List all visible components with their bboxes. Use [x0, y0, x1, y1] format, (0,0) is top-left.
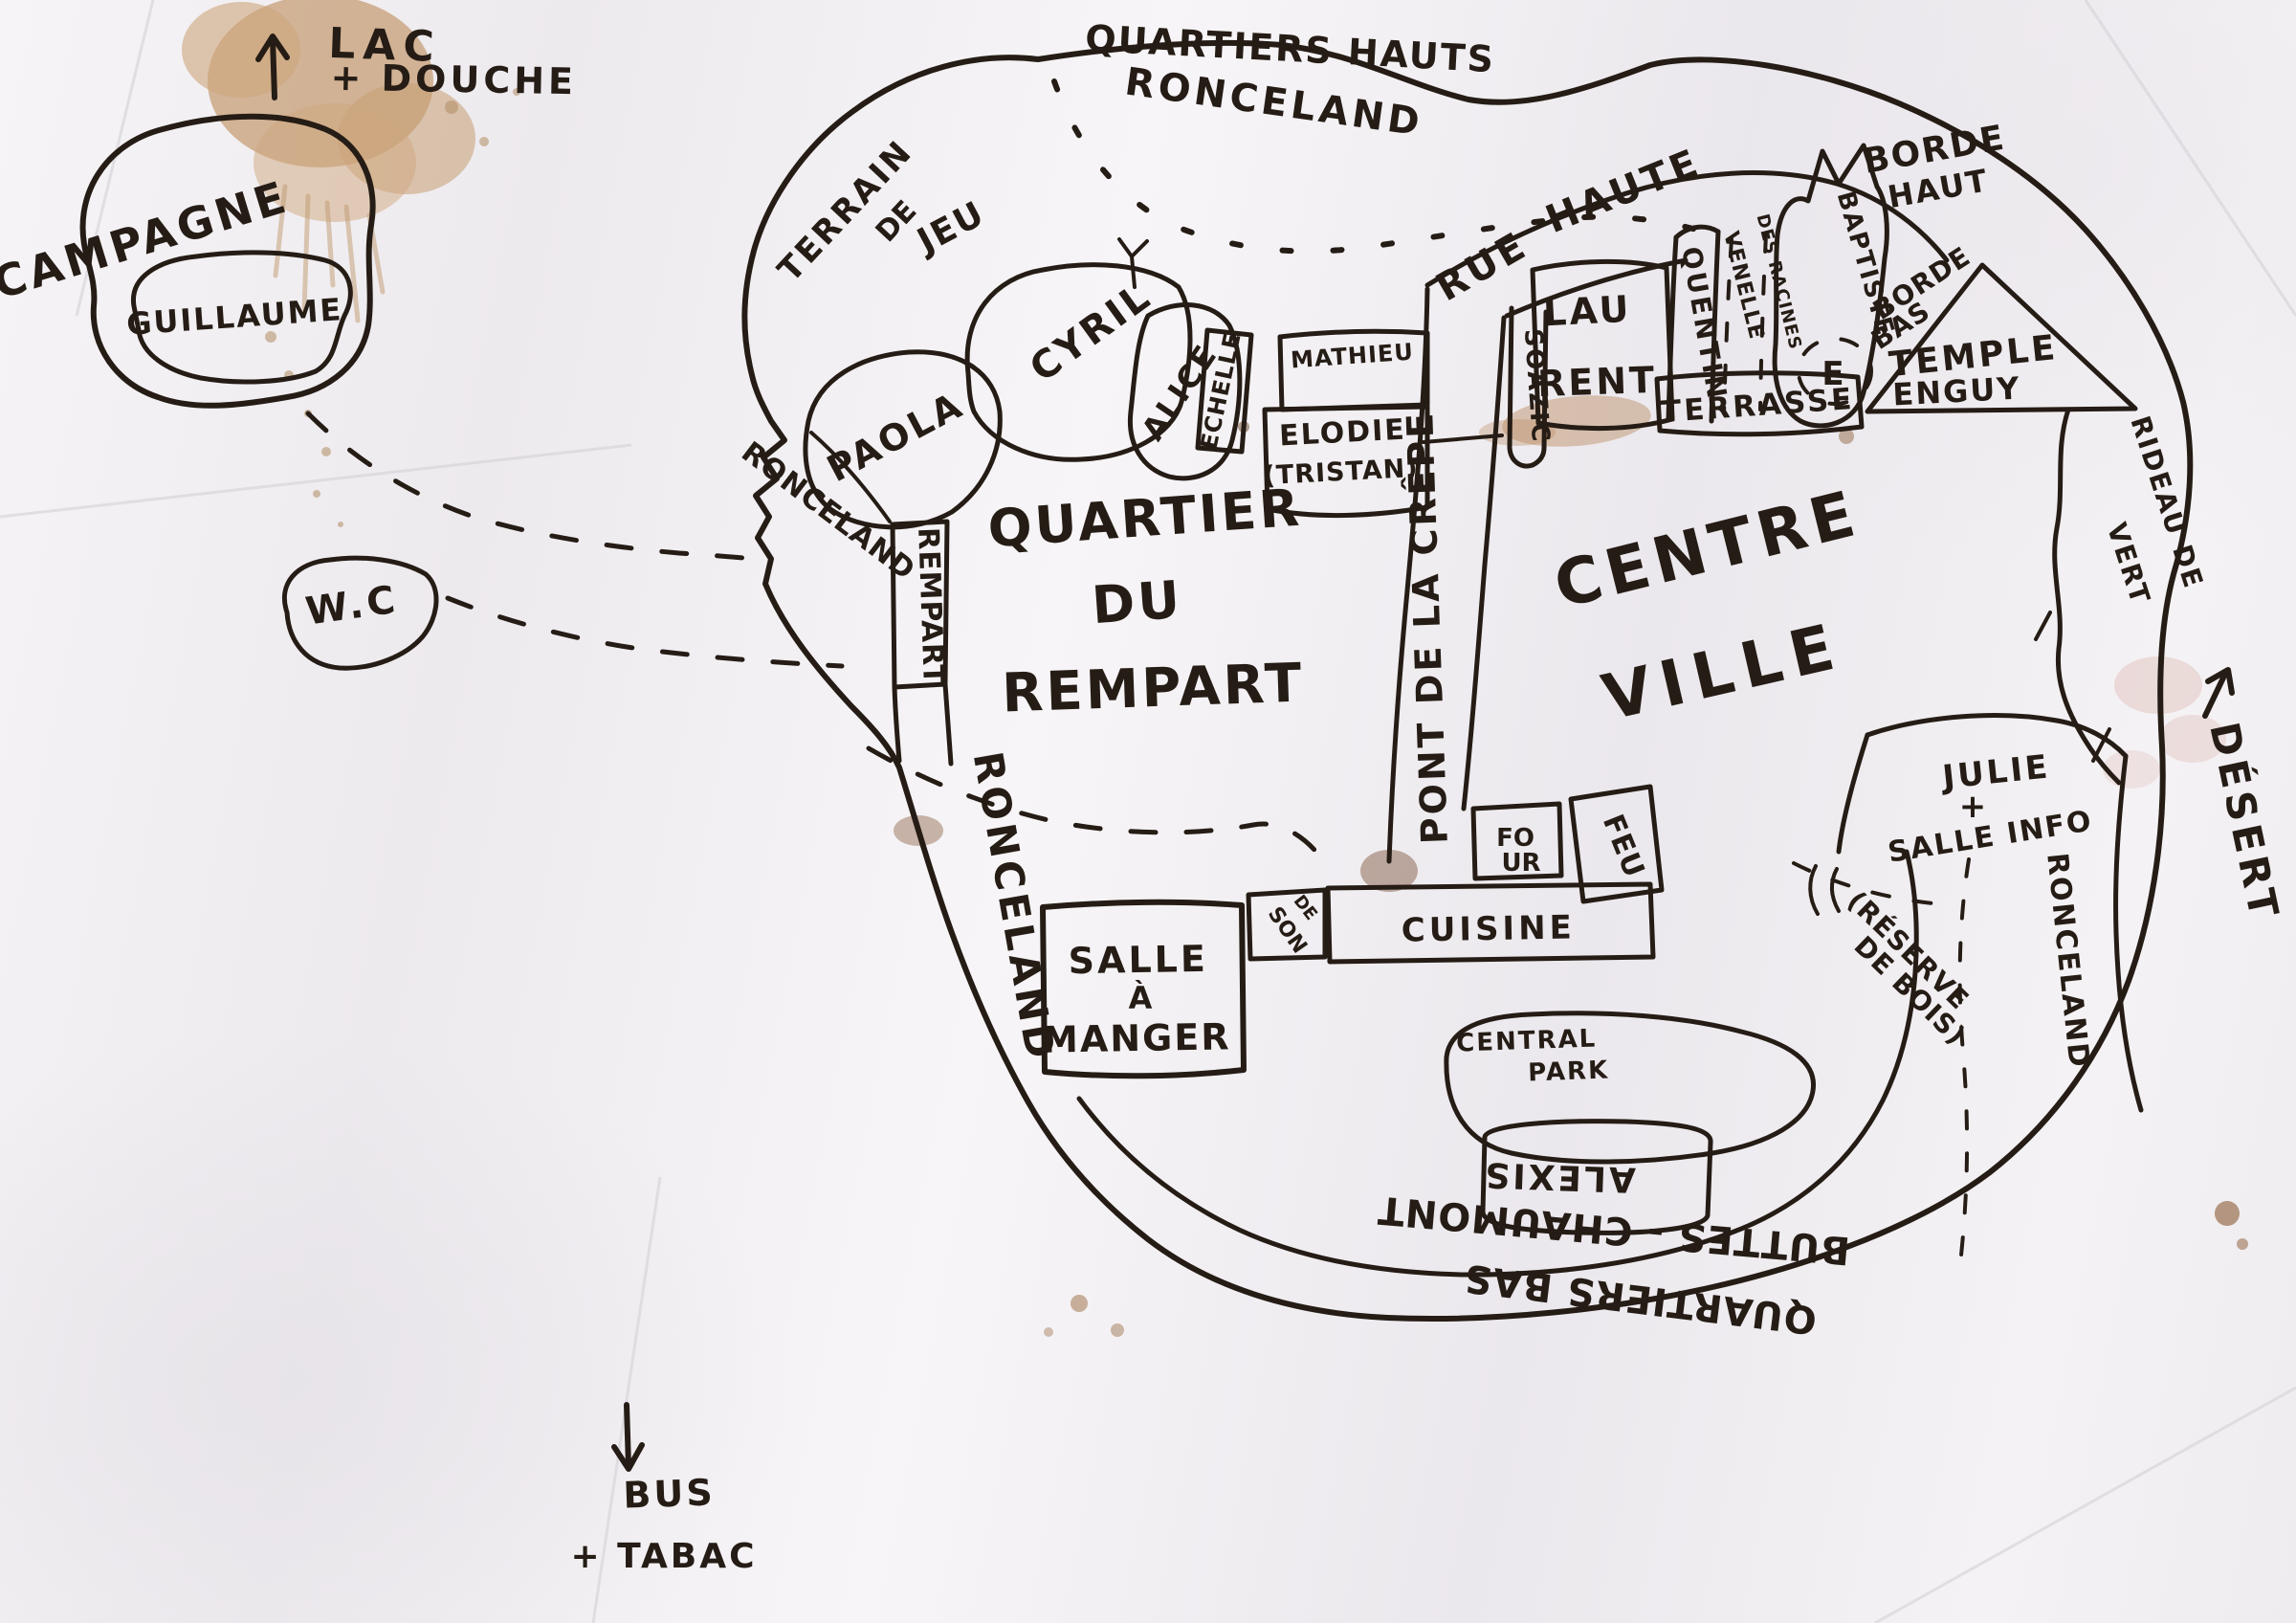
splatter-dot: [265, 331, 276, 343]
splatter-dot: [313, 490, 320, 498]
splatter-dot: [479, 137, 489, 146]
arrow-stem: [273, 38, 275, 98]
arrow-up-desert-icon: [2205, 670, 2232, 716]
label-buttes-chaumont: BUTTES - CHAUMONT: [1376, 1187, 1852, 1272]
brown-spot: [2215, 1201, 2240, 1226]
label-feu: FEU: [1596, 810, 1651, 882]
pont-road-right: [1464, 318, 1504, 809]
label-bus: BUS: [623, 1471, 717, 1516]
label-cuisine: CUISINE: [1401, 908, 1576, 949]
label-rempart-district: REMPART: [1001, 653, 1305, 725]
label-a-grave: À: [1129, 980, 1153, 1016]
label-elodie: ELODIE: [1278, 413, 1406, 454]
label-four-line2: UR: [1501, 849, 1540, 878]
label-centre: CENTRE: [1547, 476, 1867, 623]
label-central: CENTRAL: [1456, 1024, 1598, 1057]
arrow-branch: [1119, 239, 1132, 256]
label-enguy: ENGUY: [1891, 370, 2021, 413]
label-quentin: QUENTIN: [1675, 244, 1733, 403]
label-jeu: JEU: [909, 194, 992, 263]
paper-creases: [0, 0, 2296, 1623]
crease-line: [0, 445, 631, 517]
arrow-stem: [627, 1405, 629, 1466]
label-quartiers-bas: QUARTIERS BAS: [1461, 1255, 1819, 1342]
scanned-paper-map: LAC + DOUCHE CAMPAGNE GUILLAUME W.C BUS …: [0, 0, 2296, 1623]
label-wc: W.C: [303, 578, 402, 634]
splatter-dot: [445, 100, 458, 114]
arrow-branch: [1132, 241, 1147, 256]
brown-spot: [1111, 1323, 1124, 1337]
brown-spot: [1044, 1327, 1053, 1337]
label-campagne: CAMPAGNE: [0, 170, 295, 309]
label-terrasse: TERRASSE: [1660, 382, 1856, 430]
label-douche: + DOUCHE: [330, 56, 577, 102]
label-rempart-road: REMPART: [911, 527, 950, 686]
pink-smudge: [2103, 750, 2160, 789]
ronceland-east-road-left: [2116, 756, 2141, 1110]
reserve-dashed-trail: [1959, 859, 1969, 1273]
ink-drawing: [83, 36, 2232, 1469]
label-guillaume: GUILLAUME: [125, 291, 344, 343]
label-desert: DÉSERT: [2200, 718, 2289, 925]
splatter-dot: [338, 522, 343, 527]
label-alexis: ALEXIS: [1482, 1154, 1637, 1199]
brown-spot: [1071, 1295, 1088, 1312]
reserve-paren-mark: [1832, 869, 1839, 911]
splatter-dot: [321, 447, 331, 456]
label-quartier: QUARTIER: [986, 478, 1304, 560]
hand-drawn-camp-map: LAC + DOUCHE CAMPAGNE GUILLAUME W.C BUS …: [0, 0, 2296, 1623]
label-rent: RENT: [1536, 359, 1657, 405]
label-du: DU: [1090, 569, 1184, 635]
label-salle: SALLE: [1068, 938, 1208, 983]
trail-to-campagne: [308, 413, 754, 559]
label-tabac: + TABAC: [570, 1537, 757, 1576]
julie-zone-top: [1867, 716, 2126, 756]
label-paola: PAOLA: [820, 384, 970, 490]
rempart-district-dashed-boundary: [869, 748, 1322, 859]
julie-zone-left: [1839, 735, 1867, 852]
crease-line: [1875, 1388, 2296, 1623]
map-labels: LAC + DOUCHE CAMPAGNE GUILLAUME W.C BUS …: [0, 17, 2289, 1576]
rempart-road-right: [945, 684, 951, 764]
trail-to-wc: [448, 598, 842, 666]
label-julie-plus: +: [1959, 788, 1987, 826]
path-slash-mark: [2036, 612, 2050, 639]
label-park: PARK: [1528, 1056, 1610, 1088]
label-cyril: CYRIL: [1022, 274, 1159, 390]
label-pont-de-la-crepe-road: PONT DE LA CRÊPE: [1399, 410, 1456, 845]
rempart-road-left: [894, 687, 899, 761]
label-manger: MANGER: [1042, 1015, 1231, 1060]
label-lau: LAU: [1542, 288, 1632, 335]
label-julie: JULIE: [1939, 747, 2052, 797]
label-ville: VILLE: [1596, 609, 1850, 735]
reserve-paren-mark: [1810, 866, 1818, 914]
label-ronceland-east-road: RONCELAND: [2040, 852, 2095, 1071]
label-vert: VERT: [2101, 519, 2157, 609]
label-haute: HAUTE: [1540, 141, 1708, 242]
brown-spot: [2237, 1238, 2248, 1250]
label-mathieu: MATHIEU: [1290, 339, 1415, 374]
quentin-strip-top: [1676, 227, 1718, 237]
